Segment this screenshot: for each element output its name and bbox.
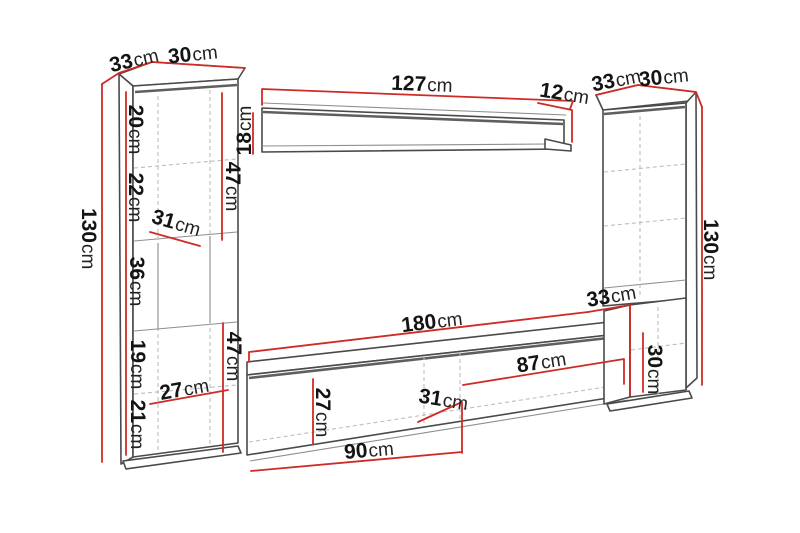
svg-text:cm: cm [182,376,211,401]
svg-text:130: 130 [77,208,100,243]
svg-text:31: 31 [417,385,444,411]
dim-label-right-30: 30 cm [643,345,666,395]
svg-text:180: 180 [400,310,438,337]
dim-label-tv-90: 90 cm [343,437,395,464]
svg-text:127: 127 [391,72,427,96]
svg-text:cm: cm [126,364,147,389]
svg-text:18: 18 [233,132,256,156]
svg-text:cm: cm [562,84,590,109]
svg-text:cm: cm [311,412,332,437]
svg-text:cm: cm [662,65,689,89]
right-cabinet-side-face [686,92,697,388]
dim-label-shelf-18: 18 cm [233,106,256,156]
svg-text:cm: cm [221,186,242,211]
svg-text:cm: cm [427,75,453,97]
dim-label-left-height-130: 130 cm [77,208,100,269]
svg-text:cm: cm [436,309,464,333]
wall-shelf-drawing [262,103,571,152]
svg-text:87: 87 [515,351,542,377]
svg-text:cm: cm [368,439,395,462]
furniture-dimension-diagram: 33 cm 30 cm 130 cm 20 cm 22 cm 36 cm 19 … [0,0,800,533]
dim-label-left-47-lower: 47 cm [222,332,245,382]
svg-text:21: 21 [126,400,149,424]
dim-label-left-section-36: 36 cm [125,257,148,307]
dim-label-left-section-22: 22 cm [124,173,147,223]
dim-label-left-section-20: 20 cm [124,105,147,155]
svg-text:90: 90 [343,439,368,464]
svg-text:cm: cm [77,244,98,269]
svg-text:cm: cm [191,42,218,66]
svg-text:20: 20 [124,105,147,128]
svg-text:cm: cm [235,106,256,131]
svg-text:cm: cm [124,129,145,154]
svg-text:12: 12 [538,79,565,105]
svg-text:cm: cm [222,356,243,381]
dim-label-right-height-130: 130 cm [699,219,722,280]
svg-text:30: 30 [638,66,664,91]
svg-text:27: 27 [158,378,185,405]
svg-text:cm: cm [539,349,567,374]
dim-label-left-47-upper: 47 cm [221,162,244,212]
svg-text:47: 47 [222,332,245,355]
svg-text:19: 19 [126,340,149,363]
svg-text:22: 22 [124,173,147,196]
dim-label-left-section-21: 21 cm [126,400,149,450]
svg-text:cm: cm [126,424,147,449]
svg-text:36: 36 [125,257,148,280]
dim-label-tv-180: 180 cm [400,307,464,337]
svg-text:47: 47 [221,162,244,185]
svg-text:cm: cm [699,255,720,280]
svg-text:33: 33 [585,285,612,312]
dim-label-right-width-30: 30 cm [638,63,690,91]
svg-text:cm: cm [441,390,469,415]
svg-text:30: 30 [643,345,666,368]
dim-label-left-section-19: 19 cm [126,340,149,390]
svg-text:cm: cm [124,197,145,222]
dim-label-shelf-127: 127 cm [391,72,453,97]
svg-text:cm: cm [125,281,146,306]
dim-label-left-width-30: 30 cm [167,40,219,68]
dim-label-tv-27: 27 cm [311,388,334,438]
right-cabinet-lower-side [604,305,630,404]
diagram-canvas: 33 cm 30 cm 130 cm 20 cm 22 cm 36 cm 19 … [0,0,800,533]
svg-text:30: 30 [167,43,193,68]
svg-text:130: 130 [699,219,722,254]
svg-text:cm: cm [643,369,664,394]
svg-text:33: 33 [590,69,617,96]
svg-text:cm: cm [609,283,638,308]
svg-text:27: 27 [311,388,334,411]
right-cabinet-front-face [603,103,686,306]
